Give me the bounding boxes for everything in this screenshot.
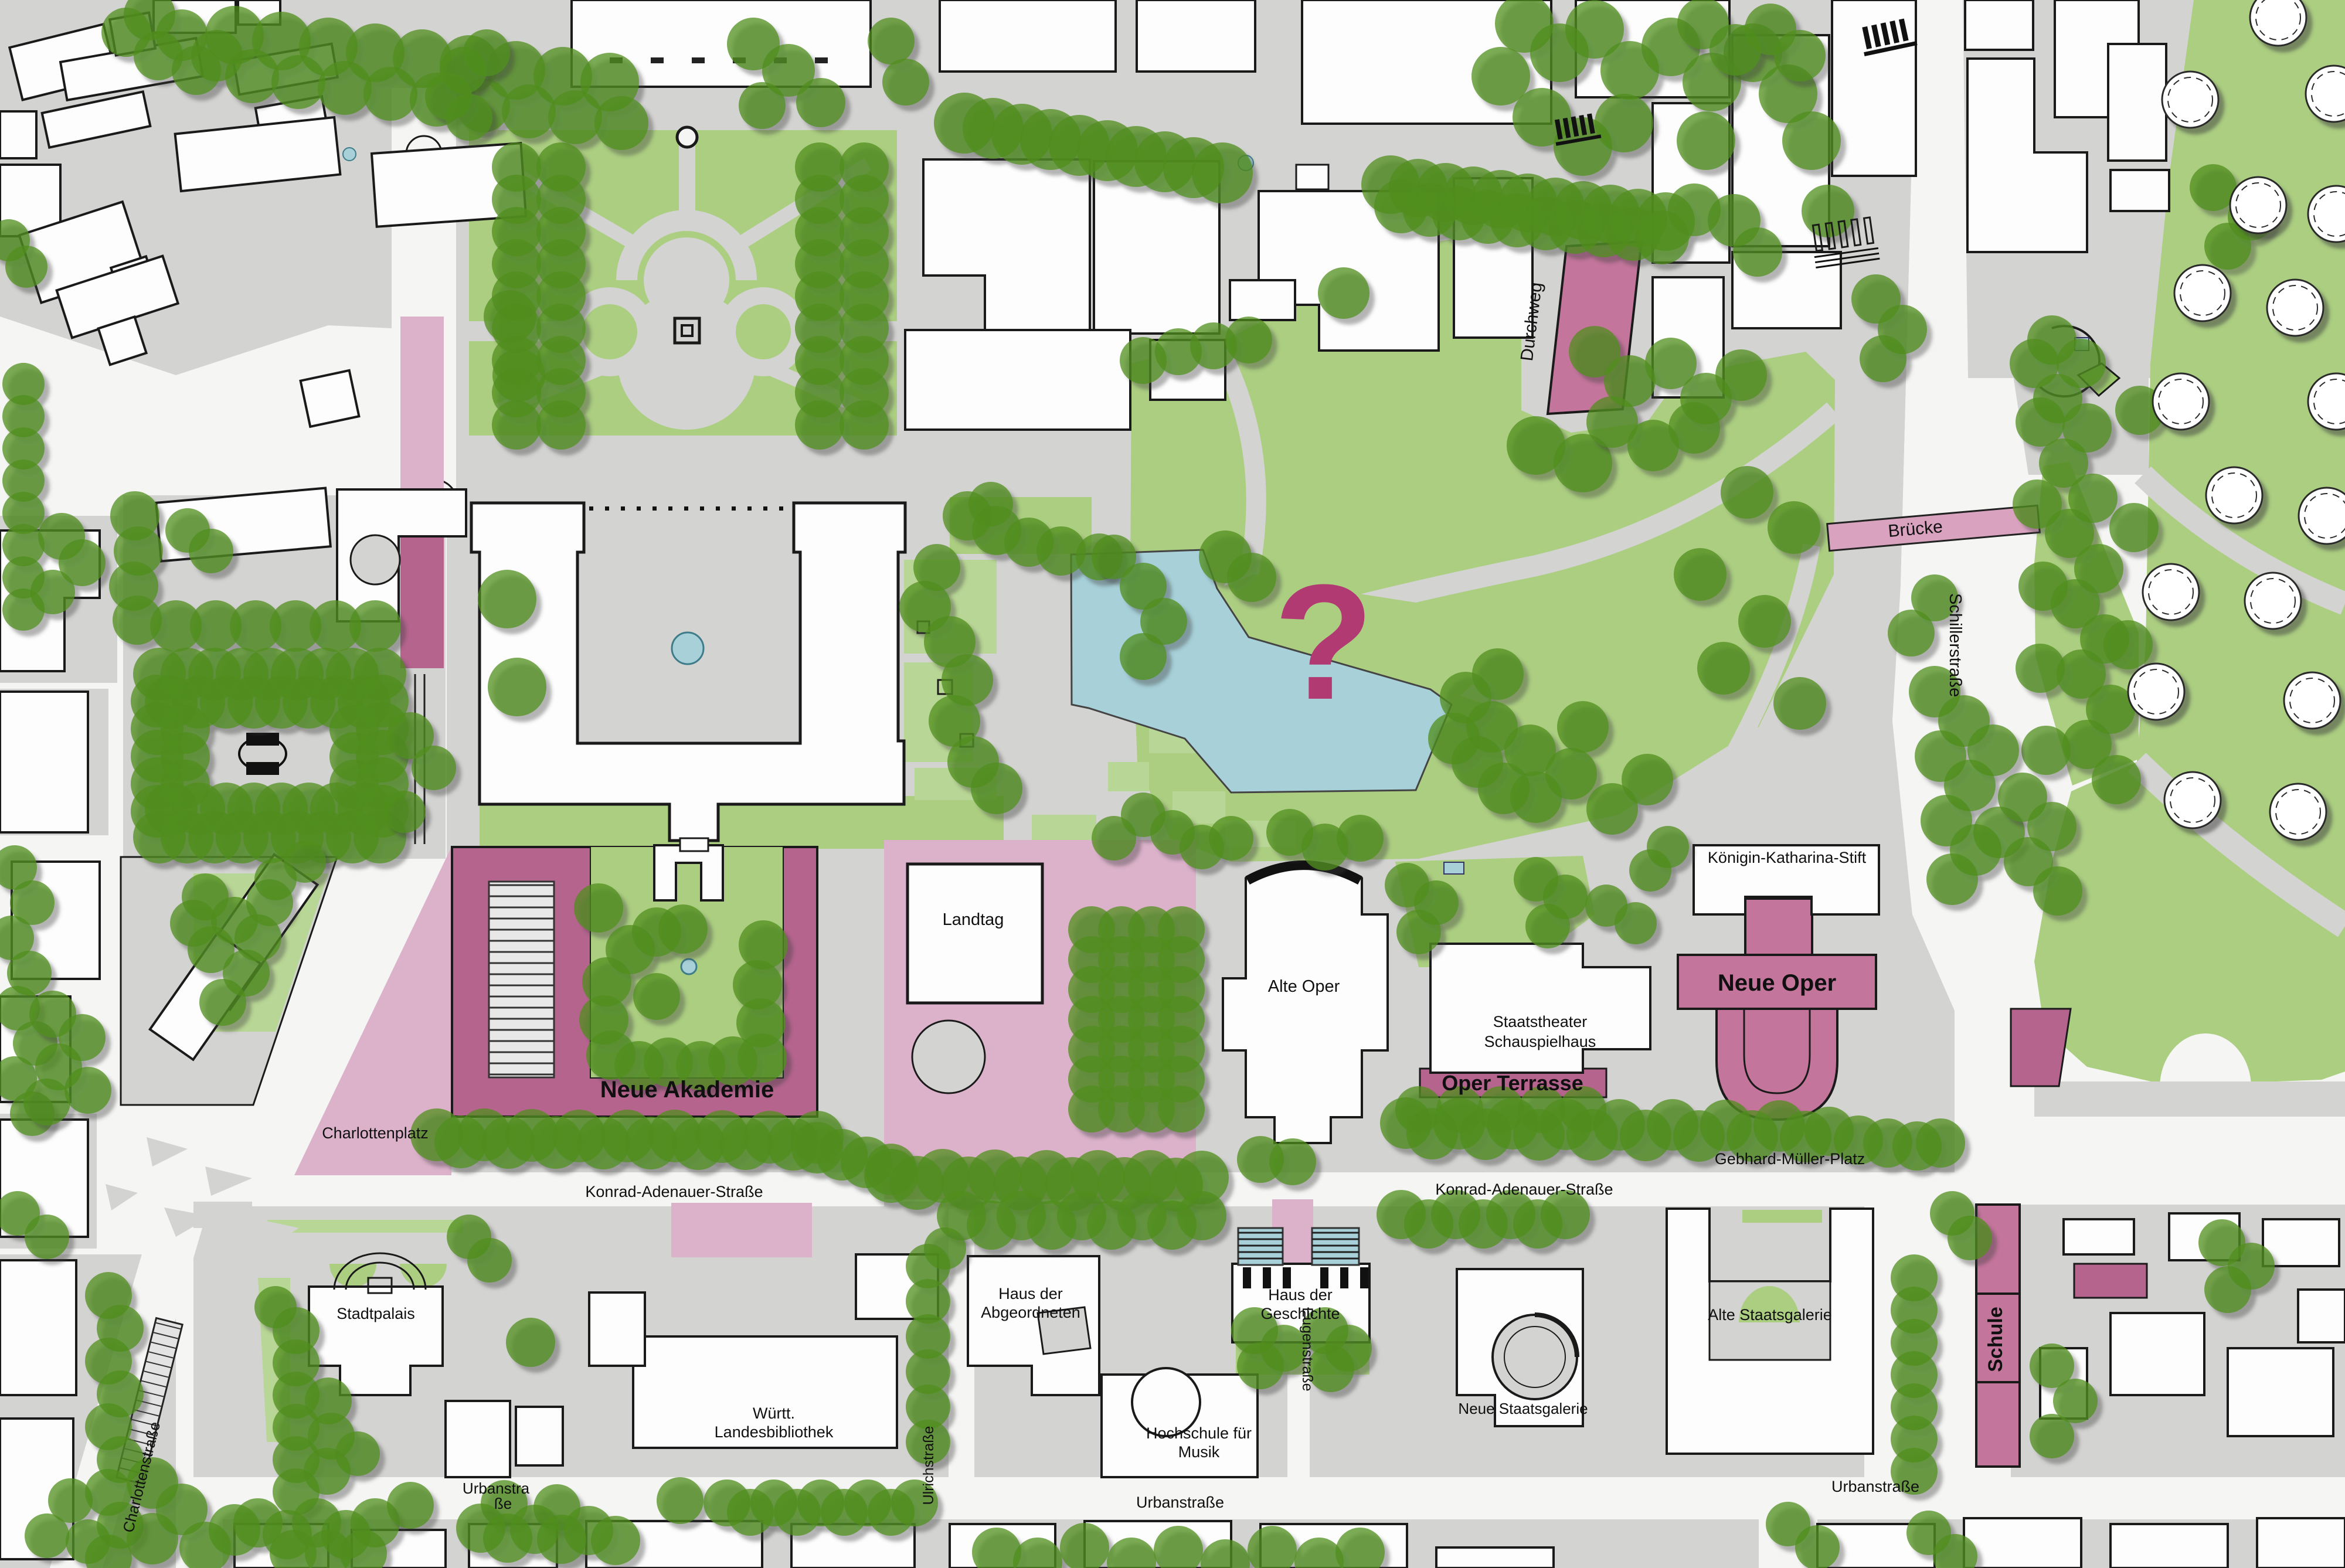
svg-text:Eugenstraße: Eugenstraße <box>1299 1307 1316 1391</box>
svg-text:Landesbibliothek: Landesbibliothek <box>715 1423 834 1441</box>
svg-text:Haus der: Haus der <box>1268 1286 1333 1304</box>
svg-text:Musik: Musik <box>1178 1443 1220 1461</box>
svg-text:Konrad-Adenauer-Straße: Konrad-Adenauer-Straße <box>585 1183 763 1200</box>
svg-text:ße: ße <box>494 1495 512 1512</box>
svg-text:Königin-Katharina-Stift: Königin-Katharina-Stift <box>1708 849 1867 866</box>
svg-text:Charlottenplatz: Charlottenplatz <box>322 1124 429 1142</box>
svg-text:Neue Oper: Neue Oper <box>1718 970 1836 996</box>
svg-text:Württ.: Württ. <box>753 1404 795 1422</box>
svg-text:Schule: Schule <box>1984 1307 2007 1372</box>
svg-text:Schauspielhaus: Schauspielhaus <box>1484 1033 1596 1050</box>
svg-text:Alte Staatsgalerie: Alte Staatsgalerie <box>1708 1306 1832 1324</box>
svg-text:Gebhard-Müller-Platz: Gebhard-Müller-Platz <box>1715 1150 1865 1168</box>
svg-text:Schillerstraße: Schillerstraße <box>1946 593 1965 697</box>
svg-text:?: ? <box>1273 551 1374 734</box>
svg-text:Oper Terrasse: Oper Terrasse <box>1442 1071 1583 1095</box>
svg-text:Alte Oper: Alte Oper <box>1268 977 1340 996</box>
svg-text:Staatstheater: Staatstheater <box>1493 1013 1588 1030</box>
svg-text:Urbanstraße: Urbanstraße <box>1136 1494 1224 1511</box>
svg-text:Abgeordneten: Abgeordneten <box>981 1304 1080 1321</box>
svg-text:Ulrichstraße: Ulrichstraße <box>920 1426 937 1505</box>
svg-text:Stadtpalais: Stadtpalais <box>337 1305 415 1322</box>
svg-text:Konrad-Adenauer-Straße: Konrad-Adenauer-Straße <box>1435 1181 1613 1198</box>
svg-text:Neue Akademie: Neue Akademie <box>600 1077 774 1103</box>
svg-text:Haus der: Haus der <box>998 1285 1063 1302</box>
svg-text:Neue Staatsgalerie: Neue Staatsgalerie <box>1458 1400 1588 1417</box>
svg-text:Hochschule für: Hochschule für <box>1146 1424 1252 1442</box>
svg-text:Landtag: Landtag <box>943 910 1004 929</box>
svg-text:Urbanstraße: Urbanstraße <box>1831 1478 1919 1495</box>
